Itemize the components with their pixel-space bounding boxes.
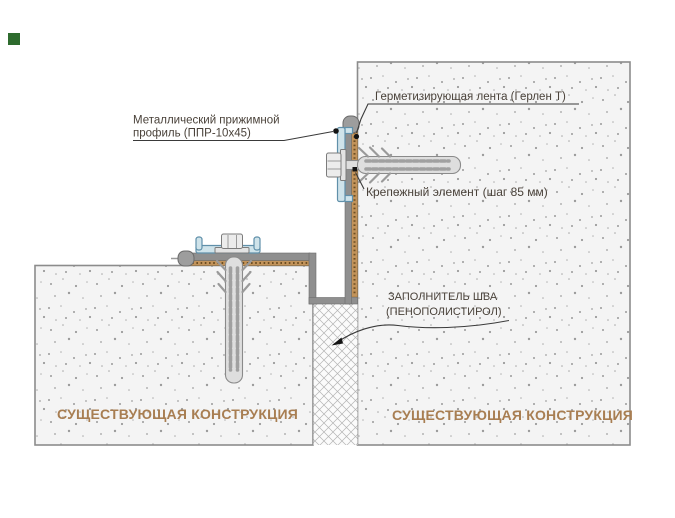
label-fastener: Крепежный элемент (шаг 85 мм) [366,185,548,199]
diagram-canvas: Металлический прижимной профиль (ППР-10х… [0,0,675,518]
label-existing-structure-right: СУЩЕСТВУЮЩАЯ КОНСТРУКЦИЯ [392,407,633,423]
label-joint-filler-line1: ЗАПОЛНИТЕЛЬ ШВА [388,291,498,303]
pressure-profile-left-lip1 [196,237,202,250]
label-pressure-profile-line2: профиль (ППР-10х45) [133,128,251,140]
pressure-profile-right-flange-top [345,128,353,134]
pressure-profile-left-lip2 [254,237,260,250]
pressure-profile-right-flange-bottom [345,196,353,202]
joint-filler-hatch [314,304,358,445]
hex-bolt-left-head [222,234,243,249]
label-pressure-profile-line1: Металлический прижимной [133,115,280,127]
corner-marker [8,33,20,45]
tape-end-cap-left [178,251,194,266]
membrane-step-vertical [309,253,316,304]
hex-bolt-right-head [327,153,342,177]
anchor-dowel-right [358,157,461,174]
label-joint-filler-line2: (ПЕНОПОЛИСТИРОЛ) [386,306,501,318]
leader-pressure-profile-dot [333,128,339,134]
leader-sealing-tape-dot [354,134,359,139]
leader-fastener-dot [353,167,358,172]
label-sealing-tape: Герметизирующая лента (Герлен Т) [375,91,566,103]
anchor-dowel-left [226,257,243,383]
label-existing-structure-left: СУЩЕСТВУЮЩАЯ КОНСТРУКЦИЯ [57,406,298,422]
right-structure-block [358,62,631,445]
membrane-top-strip [186,253,310,261]
